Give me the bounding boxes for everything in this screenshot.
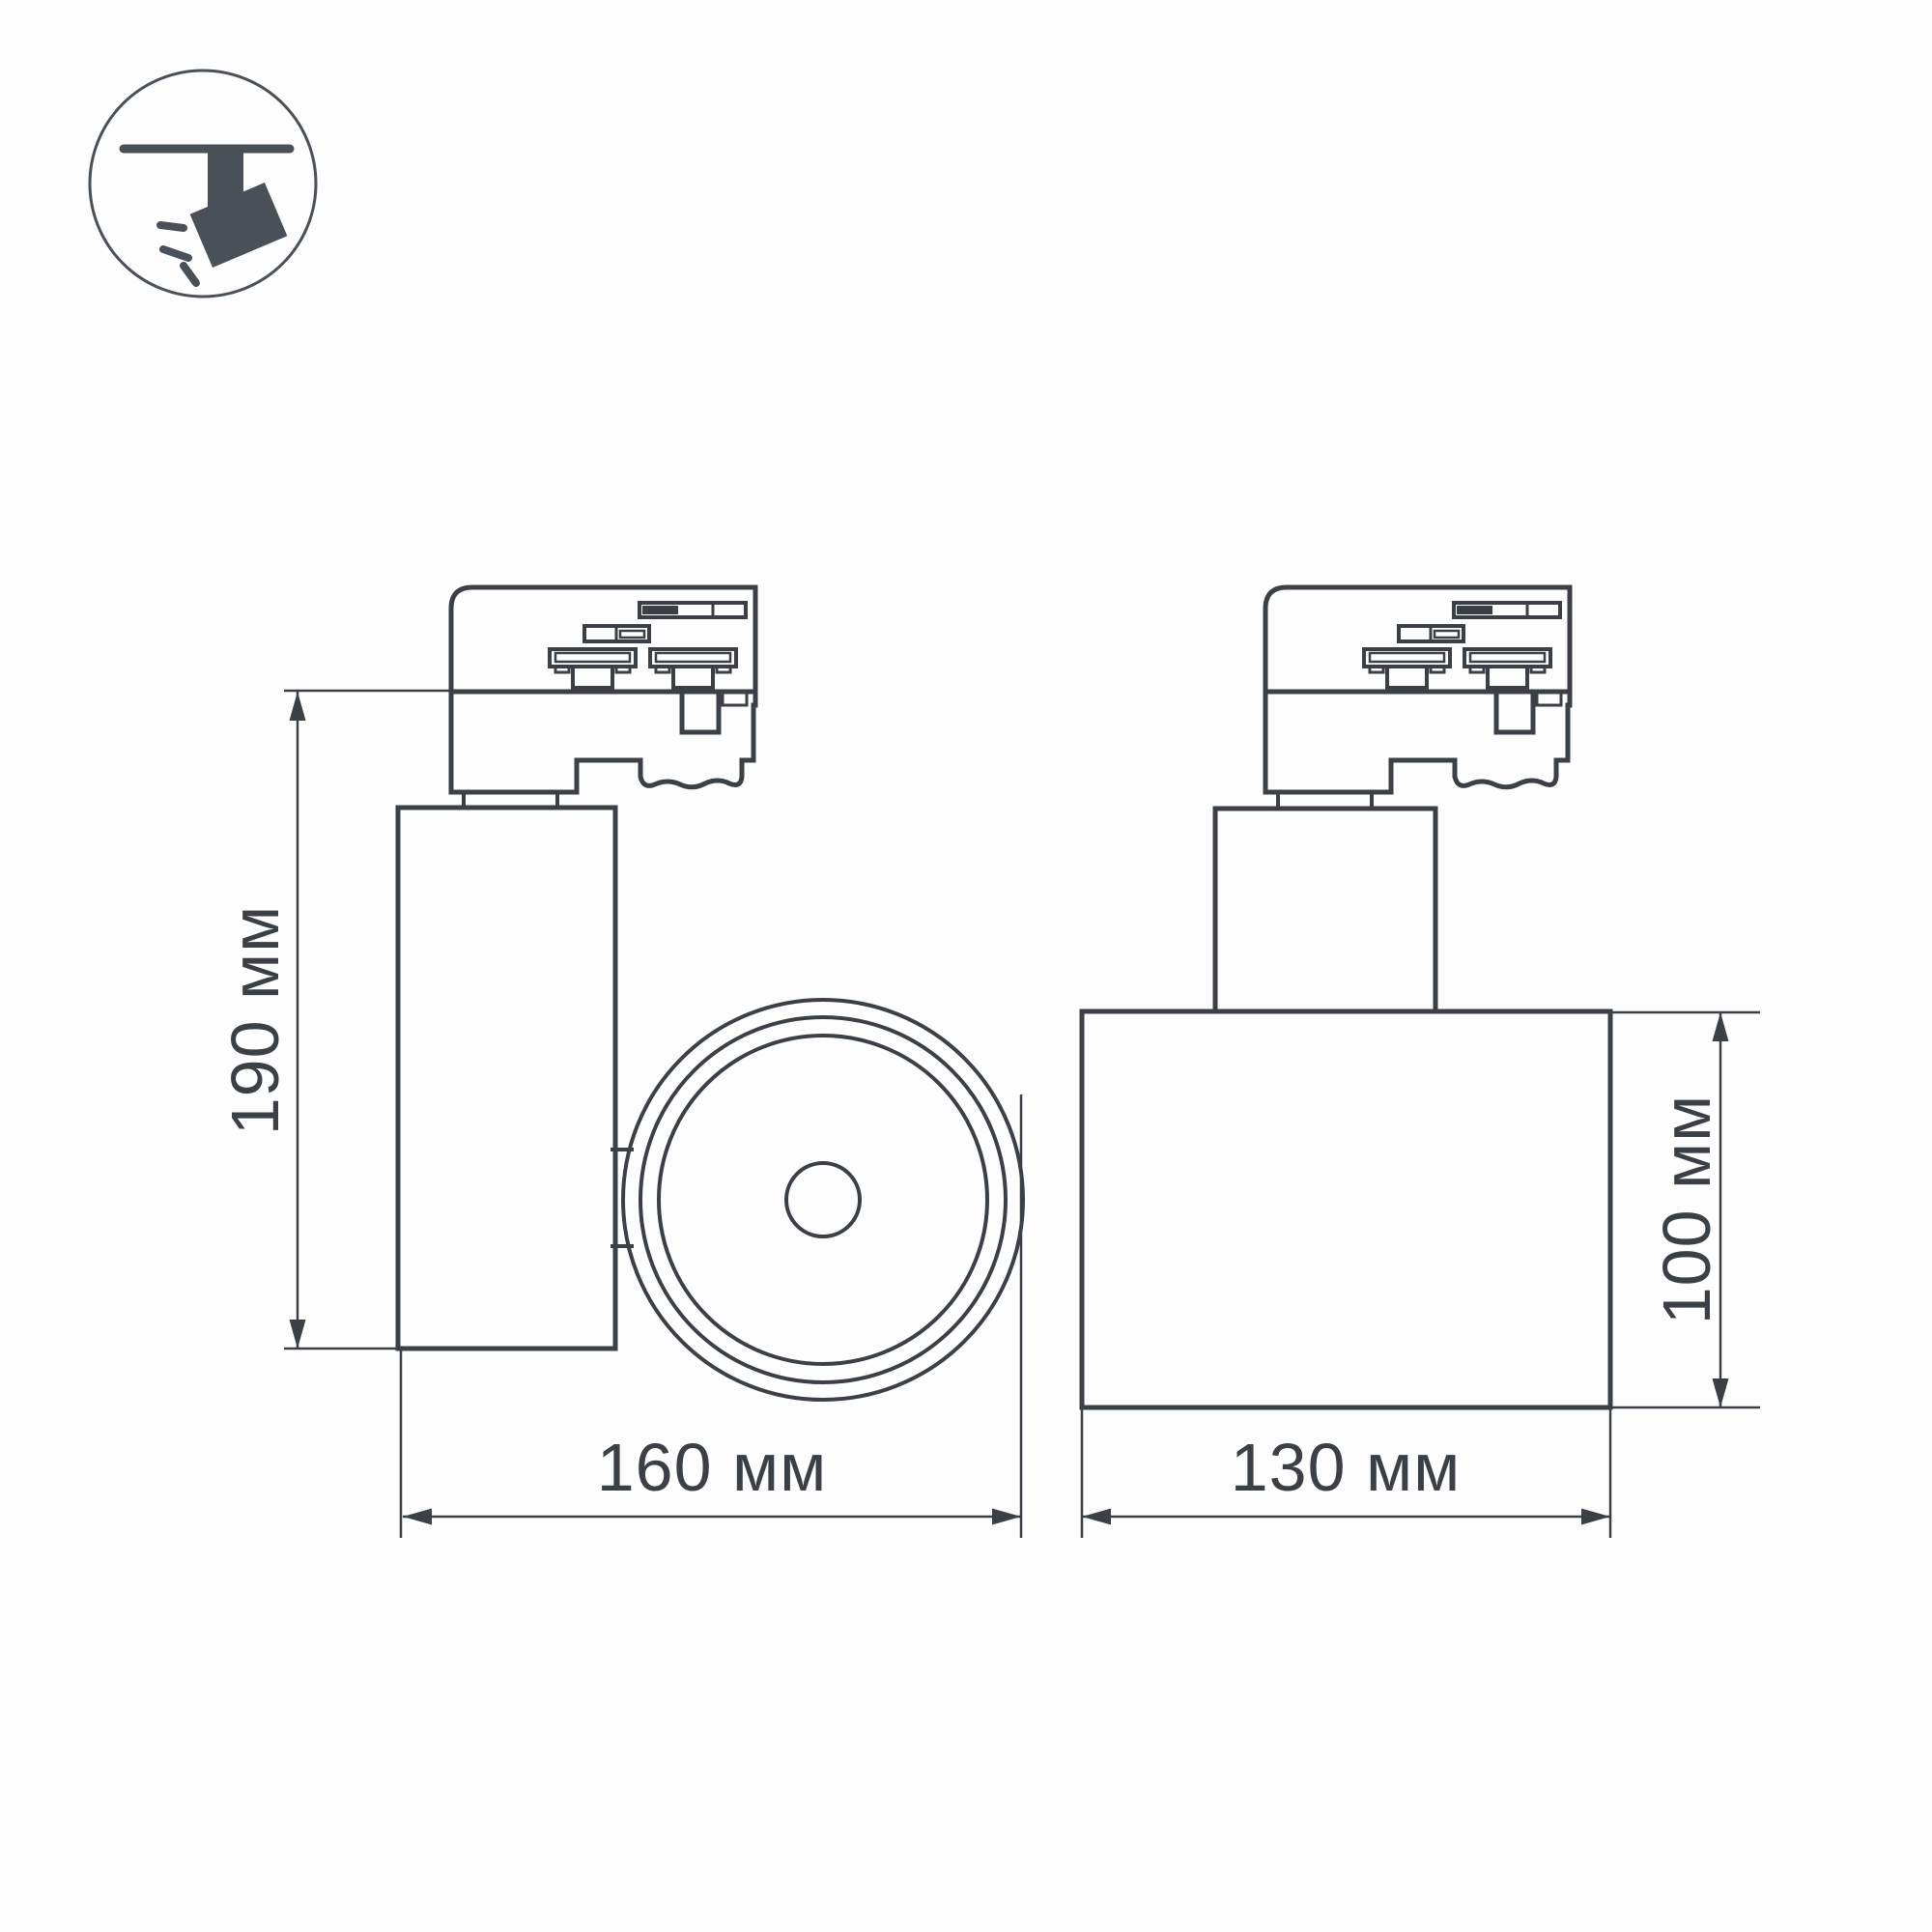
collar xyxy=(1215,809,1435,1011)
lens-center-circle xyxy=(786,1163,860,1236)
dimension-drawing-canvas: 190 мм 160 мм 100 мм xyxy=(0,0,1932,1932)
lens-ring-inner xyxy=(659,1036,987,1364)
dimension-width-side: 160 мм xyxy=(401,1094,1021,1538)
lens-ring-middle xyxy=(640,1017,1006,1382)
arrowhead-down xyxy=(290,1320,306,1349)
dimension-label-width-side: 160 мм xyxy=(597,1430,828,1505)
dimension-width-front: 130 мм xyxy=(1082,1409,1610,1538)
track-adapter xyxy=(1265,587,1570,809)
lens-ring-outer xyxy=(623,1000,1023,1400)
dimension-height-side: 190 мм xyxy=(217,691,451,1349)
lens-face xyxy=(611,1000,1023,1400)
lamp-body-side xyxy=(398,808,615,1349)
arrowhead-left xyxy=(1082,1509,1111,1525)
light-rays-icon xyxy=(160,225,196,283)
side-view: 190 мм 160 мм xyxy=(217,587,1023,1538)
arrowhead-right xyxy=(992,1509,1021,1525)
arrowhead-up xyxy=(1713,1012,1729,1041)
lamp-body-front xyxy=(1082,1011,1610,1407)
icon-circle xyxy=(90,71,316,297)
front-view: 100 мм 130 мм xyxy=(1082,587,1760,1538)
track-light-icon xyxy=(90,71,316,297)
arrowhead-down xyxy=(1713,1378,1729,1407)
dimension-label-height-front: 100 мм xyxy=(1649,1094,1724,1325)
track-adapter xyxy=(451,587,755,809)
dimension-label-height-side: 190 мм xyxy=(217,905,293,1136)
dimension-height-front: 100 мм xyxy=(1610,1012,1760,1407)
spotlight-head xyxy=(190,183,288,268)
arrowhead-up xyxy=(290,692,306,721)
arrowhead-left xyxy=(403,1509,432,1525)
technical-drawing-page: 190 мм 160 мм 100 мм xyxy=(0,0,1932,1932)
arrowhead-right xyxy=(1581,1509,1610,1525)
dimension-label-width-front: 130 мм xyxy=(1231,1430,1462,1505)
